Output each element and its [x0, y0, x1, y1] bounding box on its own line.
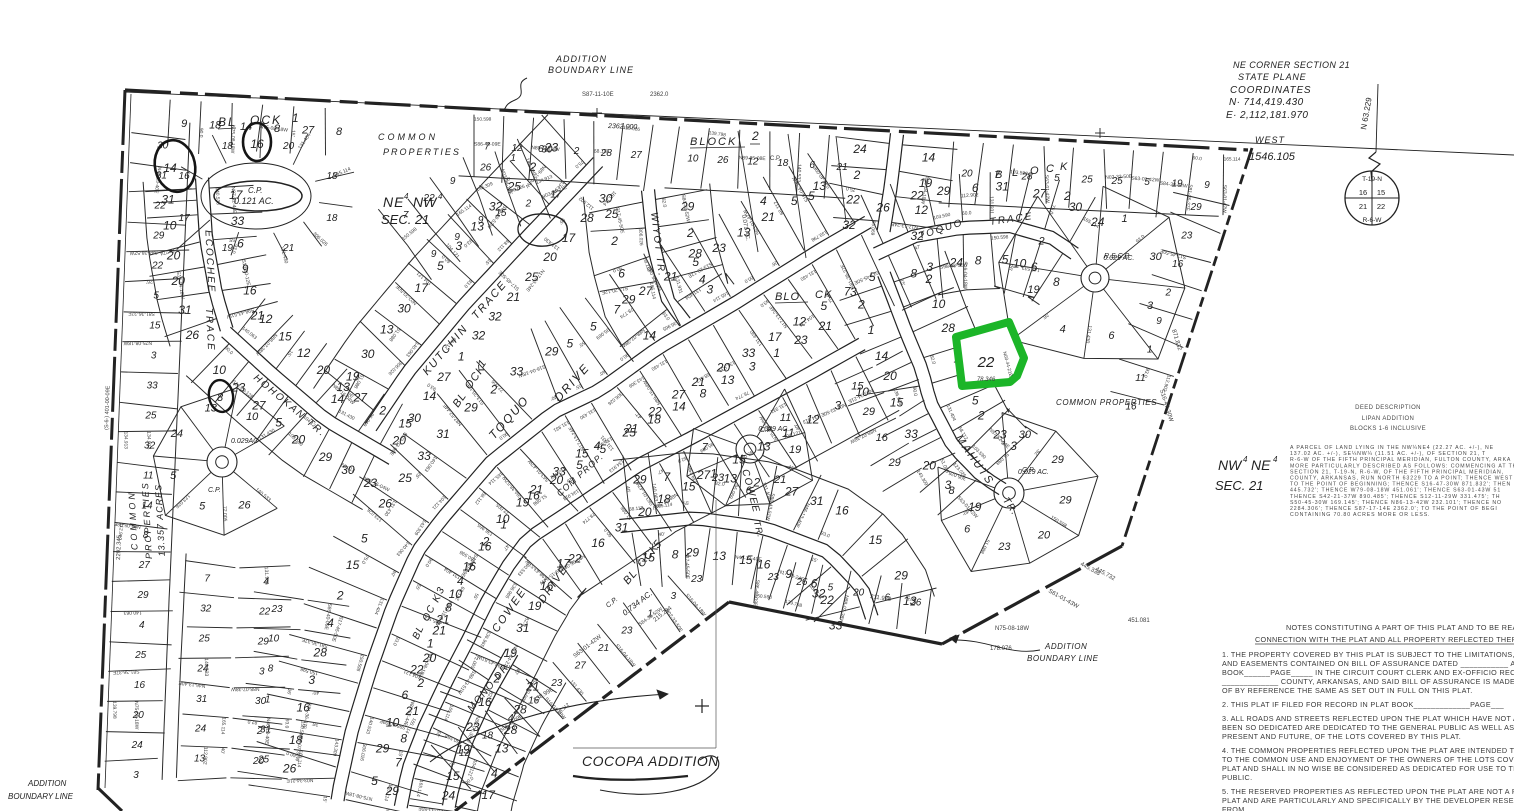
svg-text:2: 2 — [1063, 189, 1071, 203]
svg-text:PRESENT AND FUTURE, OF THE LOT: PRESENT AND FUTURE, OF THE LOTS COVERED … — [1222, 732, 1461, 741]
svg-text:1: 1 — [868, 323, 875, 337]
svg-text:15: 15 — [495, 208, 507, 219]
svg-text:19: 19 — [789, 444, 801, 456]
svg-text:12: 12 — [297, 346, 311, 360]
svg-text:5: 5 — [590, 320, 597, 334]
svg-text:DEED DESCRIPTION: DEED DESCRIPTION — [1355, 405, 1421, 411]
svg-text:16: 16 — [1172, 259, 1184, 270]
svg-text:1: 1 — [427, 637, 434, 651]
svg-text:13: 13 — [337, 380, 351, 394]
svg-text:16: 16 — [297, 701, 311, 715]
svg-text:N75-08-18W: N75-08-18W — [123, 340, 152, 346]
svg-text:16: 16 — [591, 536, 605, 550]
svg-text:2284.306'; THENCE S87-17-14E 2: 2284.306'; THENCE S87-17-14E 2362.0'; TO… — [1290, 506, 1498, 512]
svg-text:10: 10 — [496, 512, 510, 526]
svg-text:9: 9 — [431, 249, 437, 260]
svg-text:20: 20 — [132, 710, 145, 721]
svg-text:31: 31 — [810, 494, 823, 508]
svg-text:9: 9 — [242, 262, 249, 276]
svg-text:CK: CK — [815, 289, 832, 301]
svg-text:SECTION 21, T-19-N, R-6-W, OF: SECTION 21, T-19-N, R-6-W, OF THE FIFTH … — [1290, 469, 1504, 475]
svg-text:20: 20 — [852, 587, 865, 598]
svg-text:OCK: OCK — [250, 113, 282, 127]
svg-text:29: 29 — [463, 400, 478, 414]
svg-text:15': 15' — [289, 130, 296, 137]
svg-text:17: 17 — [482, 788, 497, 802]
svg-text:2: 2 — [610, 234, 618, 248]
svg-text:32: 32 — [472, 329, 486, 343]
svg-text:5: 5 — [199, 501, 206, 513]
svg-text:25: 25 — [604, 207, 619, 221]
svg-text:20: 20 — [882, 369, 897, 383]
svg-text:14: 14 — [672, 400, 686, 414]
svg-text:S50-45-30W 169.145'; THENCE N8: S50-45-30W 169.145'; THENCE N86-13-42W 2… — [1290, 500, 1502, 506]
svg-text:445.732'; THENCE W79-08-18W 45: 445.732'; THENCE W79-08-18W 451.061'; TH… — [1290, 488, 1501, 494]
svg-text:25: 25 — [144, 410, 157, 421]
svg-text:21: 21 — [282, 243, 294, 254]
svg-text:9: 9 — [181, 118, 187, 130]
svg-text:40': 40' — [658, 532, 665, 538]
svg-text:N· 714,419.430: N· 714,419.430 — [1229, 97, 1304, 108]
svg-text:5: 5 — [869, 270, 876, 284]
svg-text:O: O — [1030, 165, 1039, 177]
svg-text:22: 22 — [258, 606, 271, 617]
svg-text:C.P.: C.P. — [760, 427, 773, 434]
svg-text:15: 15 — [732, 453, 746, 467]
svg-text:20: 20 — [542, 250, 557, 264]
svg-text:24: 24 — [441, 788, 456, 802]
svg-text:16: 16 — [876, 432, 889, 444]
svg-text:3: 3 — [850, 285, 857, 299]
svg-text:26: 26 — [378, 497, 393, 511]
svg-text:8: 8 — [700, 387, 707, 401]
svg-text:4: 4 — [1273, 455, 1278, 464]
svg-text:29: 29 — [632, 473, 647, 487]
svg-text:6: 6 — [964, 523, 971, 535]
svg-text:BOUNDARY LINE: BOUNDARY LINE — [8, 792, 74, 801]
svg-text:28: 28 — [313, 645, 328, 659]
svg-text:3. ALL ROADS AND STREETS RE: 3. ALL ROADS AND STREETS REFLECTED UPON … — [1222, 714, 1514, 723]
svg-text:1: 1 — [773, 346, 780, 360]
svg-text:PROPERTIES: PROPERTIES — [383, 147, 461, 157]
svg-text:S63-01-42W: S63-01-42W — [1043, 175, 1050, 204]
svg-text:15: 15 — [399, 417, 413, 431]
svg-text:NW: NW — [413, 194, 438, 210]
svg-text:2: 2 — [857, 298, 865, 312]
svg-text:6: 6 — [809, 160, 815, 171]
svg-text:9: 9 — [1204, 180, 1210, 191]
svg-text:47': 47' — [1000, 439, 1007, 446]
svg-text:8: 8 — [949, 485, 956, 497]
svg-text:15': 15' — [321, 796, 328, 803]
svg-text:29: 29 — [136, 590, 149, 601]
svg-text:C.P.: C.P. — [208, 487, 221, 494]
svg-text:31: 31 — [516, 621, 529, 635]
svg-text:137.02 AC. +/-), SE¼NW¼ (11.51: 137.02 AC. +/-), SE¼NW¼ (11.51 AC. +/-),… — [1290, 451, 1486, 457]
svg-text:23: 23 — [1180, 231, 1193, 242]
svg-text:33: 33 — [147, 380, 159, 391]
svg-text:32: 32 — [144, 440, 156, 451]
svg-text:NW: NW — [1218, 457, 1243, 473]
svg-text:8: 8 — [268, 664, 274, 675]
svg-text:10: 10 — [449, 587, 463, 601]
svg-text:12: 12 — [793, 315, 807, 329]
svg-text:13: 13 — [380, 322, 394, 336]
svg-text:29: 29 — [888, 457, 901, 469]
svg-text:29: 29 — [680, 199, 695, 213]
svg-text:451.081: 451.081 — [1128, 618, 1150, 624]
svg-text:21: 21 — [818, 319, 832, 333]
svg-text:25: 25 — [1081, 175, 1094, 186]
svg-text:5: 5 — [1054, 173, 1060, 184]
svg-text:21: 21 — [506, 290, 520, 304]
svg-text:COCOPA ADDITION: COCOPA ADDITION — [582, 753, 719, 769]
svg-text:23: 23 — [620, 626, 633, 637]
svg-text:16: 16 — [835, 504, 849, 518]
svg-text:23: 23 — [793, 333, 808, 347]
svg-text:78.346: 78.346 — [977, 377, 996, 383]
svg-text:19: 19 — [1171, 179, 1183, 190]
svg-text:SEC. 21: SEC. 21 — [381, 212, 429, 227]
svg-text:ADDITION: ADDITION — [555, 54, 607, 64]
svg-text:23: 23 — [767, 572, 780, 583]
svg-text:14: 14 — [875, 349, 889, 363]
svg-text:3: 3 — [834, 399, 841, 413]
svg-text:C.P.: C.P. — [770, 156, 781, 162]
svg-text:BL: BL — [218, 115, 237, 129]
svg-text:20: 20 — [960, 168, 973, 179]
svg-text:31: 31 — [196, 694, 207, 705]
svg-text:2: 2 — [336, 588, 344, 602]
svg-text:6: 6 — [1108, 330, 1115, 342]
svg-text:18: 18 — [326, 213, 338, 224]
svg-text:15: 15 — [346, 558, 360, 572]
svg-text:20: 20 — [1037, 530, 1051, 542]
svg-text:23: 23 — [465, 720, 480, 734]
svg-text:31: 31 — [178, 303, 191, 317]
svg-text:2362.000: 2362.000 — [607, 123, 638, 131]
svg-text:20: 20 — [316, 363, 331, 377]
svg-text:22: 22 — [151, 261, 164, 272]
svg-text:12: 12 — [459, 748, 471, 759]
svg-text:8: 8 — [400, 732, 407, 746]
svg-text:11: 11 — [1135, 373, 1145, 384]
svg-text:15: 15 — [446, 769, 460, 783]
svg-text:21: 21 — [773, 474, 786, 486]
svg-text:14: 14 — [423, 389, 437, 403]
svg-text:18: 18 — [222, 141, 234, 152]
svg-text:5: 5 — [361, 531, 368, 545]
svg-text:N88-07-38W: N88-07-38W — [231, 686, 260, 692]
svg-text:29: 29 — [152, 231, 165, 242]
svg-text:15: 15 — [278, 330, 292, 344]
svg-text:2292.345: 2292.345 — [116, 534, 123, 560]
svg-text:R-6-W OF THE FIFTH PRINCIPAL M: R-6-W OF THE FIFTH PRINCIPAL MERIDIAN, F… — [1290, 457, 1511, 463]
svg-text:16: 16 — [243, 284, 257, 298]
svg-text:5: 5 — [972, 393, 979, 407]
svg-text:3: 3 — [308, 673, 315, 687]
svg-text:13: 13 — [194, 754, 206, 765]
svg-text:29: 29 — [544, 344, 559, 358]
svg-text:5: 5 — [371, 774, 378, 788]
svg-text:140.533: 140.533 — [795, 164, 802, 183]
svg-text:3: 3 — [1010, 439, 1017, 453]
svg-text:L: L — [1012, 167, 1018, 179]
svg-text:9: 9 — [454, 232, 460, 243]
svg-text:5: 5 — [153, 290, 159, 301]
svg-text:S63-01-42W: S63-01-42W — [1221, 185, 1227, 213]
svg-text:NE: NE — [1251, 457, 1271, 473]
svg-text:29: 29 — [621, 293, 636, 307]
svg-text:B: B — [995, 169, 1002, 181]
svg-text:26: 26 — [282, 762, 297, 776]
svg-text:55': 55' — [683, 501, 690, 508]
svg-text:33: 33 — [742, 346, 756, 360]
svg-text:60.0: 60.0 — [962, 210, 972, 217]
svg-text:26': 26' — [285, 688, 292, 695]
svg-text:10: 10 — [386, 716, 400, 730]
svg-text:26: 26 — [875, 201, 890, 215]
svg-text:3: 3 — [1147, 300, 1154, 312]
svg-text:28: 28 — [941, 321, 956, 335]
svg-text:93.0: 93.0 — [283, 719, 290, 729]
svg-text:32: 32 — [488, 310, 502, 324]
svg-text:8: 8 — [217, 392, 224, 404]
svg-text:26: 26 — [795, 577, 808, 588]
svg-text:18: 18 — [326, 171, 338, 182]
svg-text:12: 12 — [747, 157, 759, 168]
svg-text:17: 17 — [179, 213, 191, 224]
svg-text:27: 27 — [630, 150, 643, 161]
svg-text:COORDINATES: COORDINATES — [1230, 85, 1311, 96]
svg-text:21: 21 — [435, 612, 449, 626]
svg-text:29: 29 — [318, 450, 333, 464]
svg-text:CONNECTION WITH THE PLAT AND A: CONNECTION WITH THE PLAT AND ALL PROPERT… — [1255, 635, 1514, 644]
svg-text:E· 2,112,181.970: E· 2,112,181.970 — [1226, 110, 1308, 121]
svg-text:1. THE PROPERTY COVERED BY: 1. THE PROPERTY COVERED BY THIS PLAT IS … — [1222, 650, 1514, 659]
svg-text:25: 25 — [134, 650, 147, 661]
svg-text:11: 11 — [143, 470, 153, 481]
svg-text:150.598: 150.598 — [474, 117, 492, 123]
svg-text:139.798: 139.798 — [111, 701, 117, 719]
svg-text:5: 5 — [170, 470, 177, 482]
svg-text:7: 7 — [204, 574, 210, 585]
svg-text:25: 25 — [198, 634, 211, 645]
svg-text:27: 27 — [436, 370, 452, 384]
svg-text:4: 4 — [760, 194, 767, 208]
svg-text:WEST: WEST — [1255, 135, 1286, 145]
svg-text:30: 30 — [341, 463, 355, 477]
svg-text:24: 24 — [194, 724, 207, 735]
svg-text:31: 31 — [260, 724, 271, 735]
svg-text:24: 24 — [196, 663, 209, 674]
svg-text:10: 10 — [163, 219, 177, 233]
svg-text:29: 29 — [1058, 494, 1071, 506]
svg-text:27: 27 — [138, 560, 151, 571]
svg-text:19: 19 — [222, 243, 234, 254]
svg-text:30: 30 — [1149, 251, 1162, 263]
svg-text:23: 23 — [363, 476, 378, 490]
svg-text:29: 29 — [375, 742, 390, 756]
svg-text:12: 12 — [915, 203, 929, 217]
svg-text:10: 10 — [268, 634, 280, 645]
svg-text:NOTES CONSTITUTING A PART OF T: NOTES CONSTITUTING A PART OF THIS PLAT A… — [1286, 623, 1514, 632]
svg-text:60.0: 60.0 — [1192, 155, 1202, 162]
svg-text:33: 33 — [417, 449, 431, 463]
svg-text:2: 2 — [925, 272, 933, 286]
svg-text:1: 1 — [510, 153, 516, 164]
svg-text:4. THE COMMON PROPERTIES RE: 4. THE COMMON PROPERTIES REFLECTED UPON … — [1222, 746, 1514, 755]
svg-text:T-19-N: T-19-N — [1362, 176, 1382, 183]
svg-text:2: 2 — [853, 168, 861, 182]
svg-text:10: 10 — [932, 297, 946, 311]
svg-text:10: 10 — [246, 411, 259, 423]
svg-text:14: 14 — [163, 161, 177, 175]
svg-text:29: 29 — [685, 545, 700, 559]
svg-text:ADDITION: ADDITION — [1044, 642, 1087, 651]
svg-text:BOUNDARY LINE: BOUNDARY LINE — [1027, 654, 1099, 663]
svg-text:21: 21 — [836, 162, 848, 173]
svg-text:23: 23 — [690, 574, 703, 585]
svg-text:THENCE S42-21-37W 890.485'; TH: THENCE S42-21-37W 890.485'; THENCE S12-1… — [1290, 494, 1500, 500]
svg-text:26: 26 — [909, 598, 922, 609]
svg-text:13: 13 — [721, 373, 735, 387]
svg-text:26': 26' — [311, 720, 318, 727]
svg-text:1: 1 — [458, 349, 465, 363]
svg-text:20: 20 — [282, 141, 295, 152]
svg-text:C.P.: C.P. — [1022, 467, 1035, 474]
svg-text:C: C — [1046, 163, 1054, 175]
svg-text:21: 21 — [405, 704, 419, 718]
svg-text:13: 13 — [495, 742, 509, 756]
svg-text:30: 30 — [1019, 429, 1032, 441]
svg-text:BLOCK: BLOCK — [690, 136, 737, 148]
svg-text:21: 21 — [761, 210, 775, 224]
svg-text:15: 15 — [149, 320, 161, 331]
svg-text:2: 2 — [416, 676, 424, 690]
svg-text:R.S.C.P.: R.S.C.P. — [1104, 253, 1130, 260]
svg-text:BEEN SO DEDICATED ARE DEDICATE: BEEN SO DEDICATED ARE DEDICATED TO THE G… — [1222, 723, 1514, 732]
svg-text:2: 2 — [482, 534, 490, 548]
svg-text:9: 9 — [478, 215, 484, 226]
svg-text:7: 7 — [702, 441, 709, 453]
svg-text:BLO: BLO — [775, 291, 800, 303]
svg-text:29: 29 — [936, 184, 951, 198]
svg-text:0.121 AC.: 0.121 AC. — [234, 196, 274, 206]
svg-text:82.0: 82.0 — [247, 718, 258, 725]
svg-text:24: 24 — [1090, 215, 1105, 229]
svg-text:11: 11 — [780, 412, 791, 424]
svg-text:6: 6 — [401, 688, 408, 702]
svg-text:140.063: 140.063 — [123, 609, 141, 615]
svg-text:14: 14 — [643, 329, 657, 343]
svg-text:3: 3 — [151, 350, 157, 361]
svg-text:23: 23 — [997, 541, 1011, 553]
svg-text:10: 10 — [687, 154, 699, 165]
svg-text:29: 29 — [862, 406, 875, 418]
svg-text:COMMON: COMMON — [378, 132, 438, 142]
svg-text:33: 33 — [904, 427, 918, 441]
svg-text:32: 32 — [842, 218, 856, 232]
svg-text:4: 4 — [438, 192, 443, 201]
svg-text:24: 24 — [852, 142, 867, 156]
svg-text:BOUNDARY LINE: BOUNDARY LINE — [548, 65, 634, 75]
svg-text:20: 20 — [291, 432, 306, 446]
svg-text:AND EASEMENTS CONTAINED ON BIL: AND EASEMENTS CONTAINED ON BILL OF ASSUR… — [1222, 659, 1514, 668]
svg-text:23: 23 — [711, 241, 726, 255]
svg-text:2: 2 — [1037, 235, 1044, 247]
svg-text:15: 15 — [869, 533, 883, 547]
svg-text:5: 5 — [828, 582, 834, 593]
svg-text:3: 3 — [706, 282, 713, 296]
svg-text:R-6-W: R-6-W — [1363, 217, 1383, 224]
svg-text:2: 2 — [1165, 288, 1172, 299]
svg-text:TO THE COMMON USE AND ENJOYMEN: TO THE COMMON USE AND ENJOYMENT OF THE O… — [1222, 755, 1514, 764]
svg-text:24: 24 — [131, 740, 144, 751]
svg-text:16: 16 — [134, 680, 146, 691]
svg-text:2362.0: 2362.0 — [650, 92, 669, 98]
svg-text:COUNTY, ARKANSAS, RUN NORTH 63: COUNTY, ARKANSAS, RUN NORTH 63229 TO A P… — [1290, 476, 1513, 482]
svg-text:C.P.: C.P. — [248, 186, 263, 195]
svg-text:6: 6 — [618, 266, 625, 280]
svg-text:PLAT AND SHALL IN NO WISE BE C: PLAT AND SHALL IN NO WISE BE CONSIDERED … — [1222, 764, 1514, 773]
svg-text:5: 5 — [1144, 177, 1150, 188]
svg-text:1: 1 — [647, 608, 653, 619]
svg-text:29: 29 — [894, 568, 909, 582]
svg-text:BLOCKS 1-6 INCLUSIVE: BLOCKS 1-6 INCLUSIVE — [1350, 426, 1426, 432]
svg-text:NE: NE — [383, 194, 404, 210]
svg-text:22: 22 — [409, 663, 424, 677]
svg-text:8: 8 — [910, 267, 917, 281]
svg-text:18: 18 — [647, 412, 661, 426]
svg-text:5: 5 — [567, 337, 574, 351]
svg-text:5. THE RESERVED PROPERTIES: 5. THE RESERVED PROPERTIES AS REFLECTED … — [1222, 787, 1514, 796]
svg-text:1: 1 — [265, 694, 271, 705]
svg-text:1: 1 — [1121, 213, 1127, 225]
svg-text:5: 5 — [821, 299, 828, 313]
svg-text:27: 27 — [353, 390, 369, 404]
svg-text:FROM.: FROM. — [1222, 805, 1247, 811]
svg-text:17: 17 — [415, 281, 430, 295]
svg-text:23: 23 — [270, 604, 283, 615]
svg-text:15: 15 — [739, 553, 753, 567]
svg-text:K: K — [1060, 161, 1068, 173]
svg-text:A PARCEL OF LAND LYING IN THE: A PARCEL OF LAND LYING IN THE NW¼NE4 (22… — [1290, 445, 1494, 451]
svg-text:90.0: 90.0 — [197, 128, 203, 138]
svg-text:16: 16 — [526, 489, 540, 503]
svg-text:BOOK______PAGE_____ IN THE CIR: BOOK______PAGE_____ IN THE CIRCUIT COURT… — [1222, 668, 1514, 677]
svg-text:4: 4 — [404, 192, 409, 201]
svg-text:28: 28 — [688, 247, 703, 261]
svg-text:2: 2 — [977, 408, 985, 422]
svg-text:25: 25 — [398, 471, 413, 485]
svg-text:30: 30 — [397, 302, 411, 316]
svg-text:17: 17 — [768, 330, 783, 344]
svg-text:25: 25 — [622, 425, 637, 439]
svg-text:COMMON PROPERTIES: COMMON PROPERTIES — [1056, 398, 1157, 407]
svg-text:2: 2 — [751, 129, 759, 143]
svg-text:13: 13 — [713, 549, 727, 563]
svg-text:16: 16 — [1359, 188, 1367, 197]
svg-text:4: 4 — [1060, 323, 1066, 335]
svg-text:25: 25 — [257, 754, 270, 765]
svg-text:165.114: 165.114 — [1224, 157, 1241, 163]
svg-text:_____________ COUNTY, ARKANSAS: _____________ COUNTY, ARKANSAS, AND SAID… — [1221, 677, 1514, 686]
svg-text:26: 26 — [237, 500, 251, 512]
svg-text:2: 2 — [489, 382, 497, 396]
svg-text:21: 21 — [597, 643, 609, 654]
svg-text:4: 4 — [699, 273, 706, 287]
